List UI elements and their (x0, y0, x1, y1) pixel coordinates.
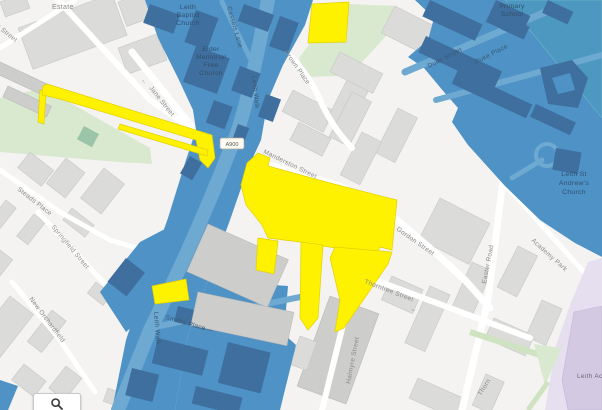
poi-label-st-andrews-3: Church (562, 189, 586, 196)
map-canvas[interactable]: A900 Estate art Street ← Jane Street Lei… (0, 0, 602, 410)
road-ref-badge: A900 (220, 138, 244, 149)
search-icon (50, 397, 64, 410)
poi-label-primary-school-2: School (501, 11, 524, 18)
poi-label-elder-2: Memorial (196, 54, 227, 61)
poi-label-st-andrews-2: Andrew's (559, 180, 589, 187)
highlight-polygon-top (308, 2, 349, 43)
poi-label-elder-1: Elder (202, 46, 220, 53)
road-ref-text: A900 (225, 142, 238, 148)
poi-label-leith-academy: Leith Ac (577, 373, 602, 380)
area-label-estate: Estate (52, 4, 74, 11)
poi-label-primary-school-1: Primary (499, 3, 525, 10)
map-viewport: A900 Estate art Street ← Jane Street Lei… (0, 0, 602, 410)
search-button[interactable] (33, 393, 81, 410)
poi-label-leith-baptist-2: Baptist (177, 12, 200, 19)
highlight-polygon-ext-left (256, 238, 278, 274)
poi-label-leith-baptist-3: Church (176, 20, 200, 27)
poi-label-elder-4: Church (199, 70, 223, 77)
poi-label-leith-baptist-1: Leith (180, 4, 196, 11)
poi-label-elder-3: Free (203, 62, 218, 69)
poi-label-st-andrews-1: Leith St (561, 171, 586, 178)
